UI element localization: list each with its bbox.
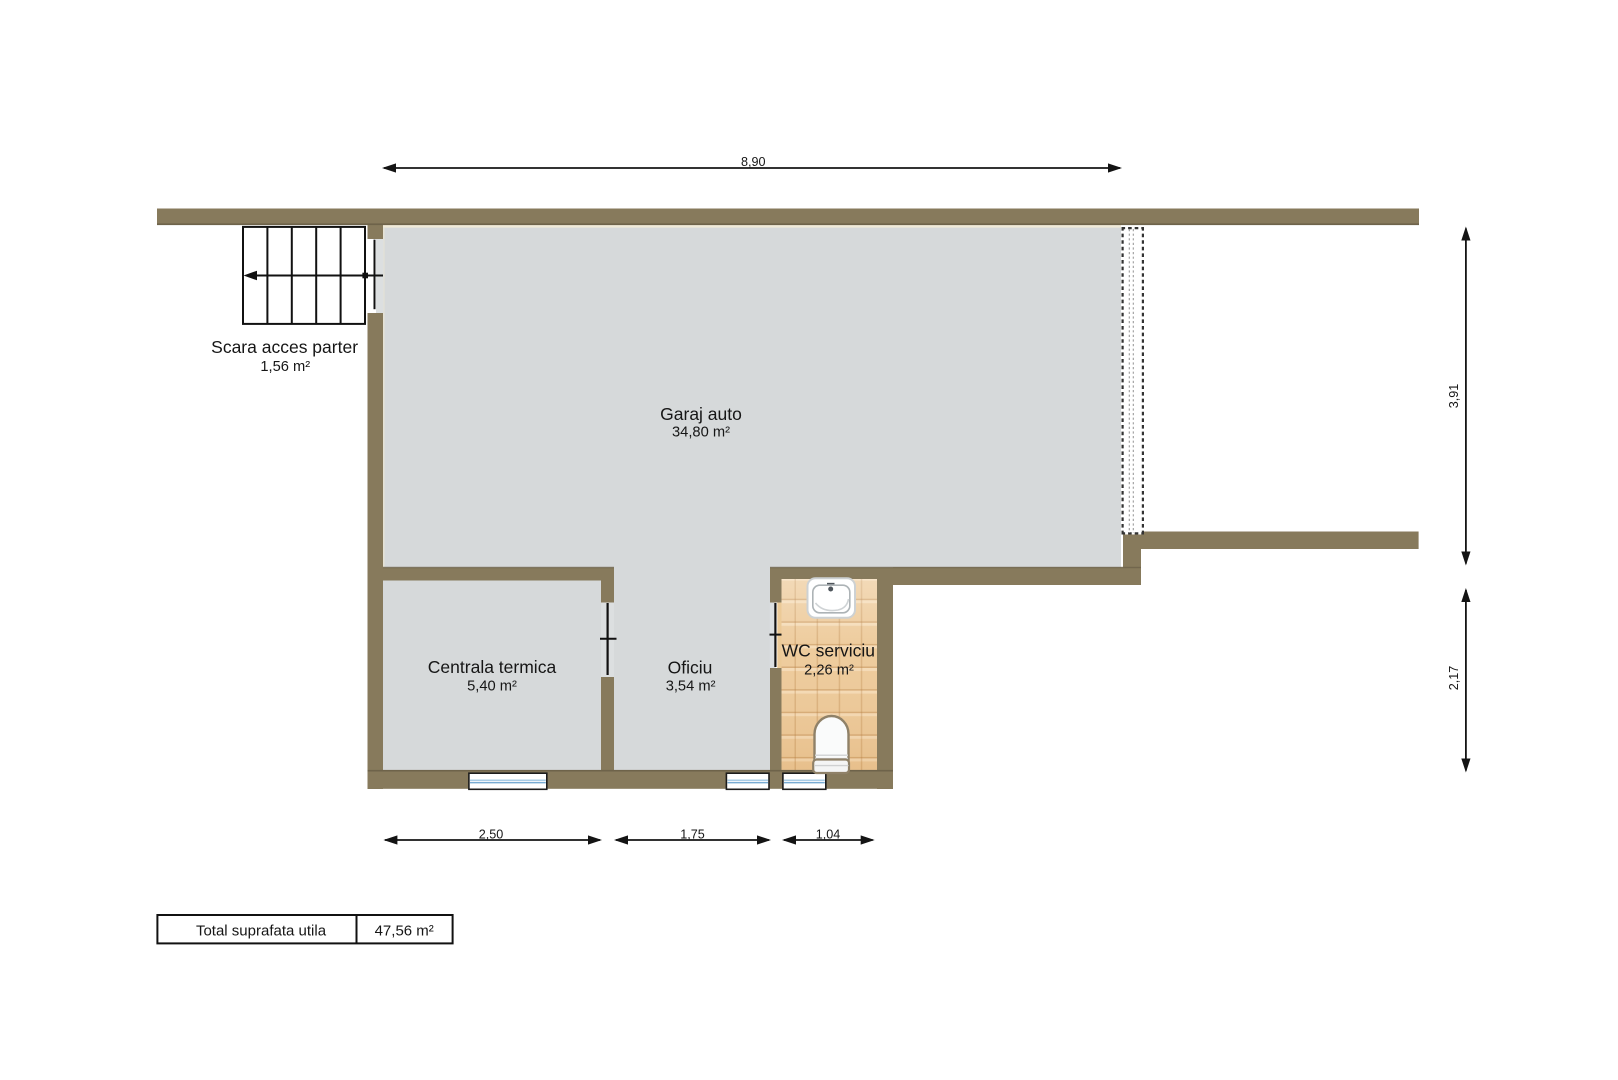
svg-text:1,56 m²: 1,56 m²	[260, 359, 310, 375]
svg-text:Centrala termica: Centrala termica	[428, 657, 557, 677]
svg-text:Garaj auto: Garaj auto	[660, 404, 742, 424]
svg-text:WC serviciu: WC serviciu	[782, 641, 875, 661]
svg-text:3,91: 3,91	[1447, 384, 1461, 409]
svg-text:5,40 m²: 5,40 m²	[467, 679, 517, 695]
svg-text:3,54 m²: 3,54 m²	[666, 678, 716, 694]
svg-text:2,50: 2,50	[479, 827, 504, 841]
svg-text:34,80 m²: 34,80 m²	[672, 424, 730, 440]
svg-text:2,26 m²: 2,26 m²	[804, 662, 854, 678]
svg-text:1,04: 1,04	[816, 827, 841, 841]
svg-text:47,56 m²: 47,56 m²	[375, 923, 434, 940]
svg-text:8,90: 8,90	[741, 155, 766, 169]
svg-text:Oficiu: Oficiu	[668, 658, 713, 678]
svg-text:1,75: 1,75	[680, 827, 705, 841]
svg-text:Total suprafata utila: Total suprafata utila	[196, 923, 327, 940]
svg-text:2,17: 2,17	[1447, 666, 1461, 691]
svg-text:Scara acces parter: Scara acces parter	[211, 337, 358, 357]
